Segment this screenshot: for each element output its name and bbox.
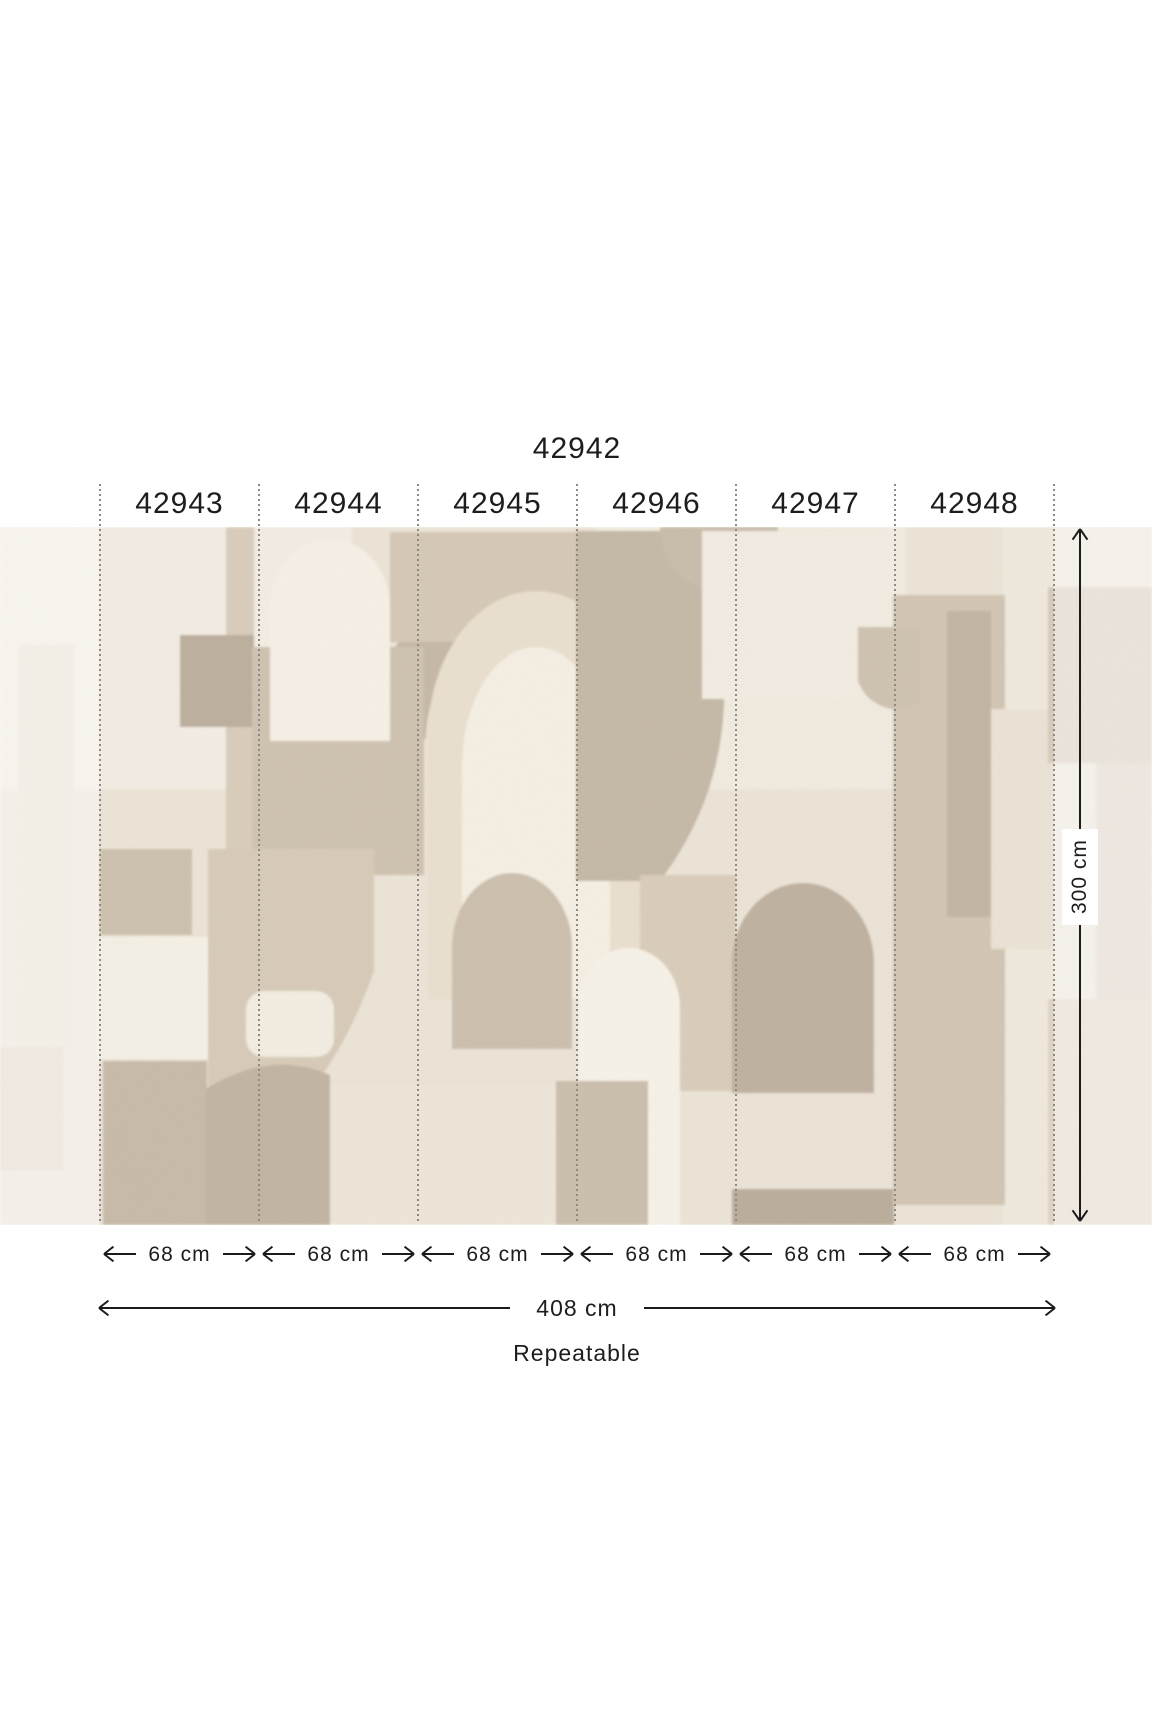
width-arrow-left-icon <box>741 1253 772 1255</box>
mural-collection-code: 42942 <box>100 434 1054 466</box>
width-arrow-right-icon <box>1018 1253 1049 1255</box>
width-arrow-left-icon <box>423 1253 454 1255</box>
panel-width-dimension: 68 cm <box>736 1240 895 1268</box>
panel-width-label: 68 cm <box>625 1244 687 1265</box>
panel-divider-dotted-line <box>1053 484 1055 1224</box>
repeatable-label: Repeatable <box>100 1340 1054 1366</box>
panel-label-42948: 42948 <box>895 489 1054 521</box>
panel-divider-dotted-line <box>99 484 101 1224</box>
total-width-arrow-left-icon <box>100 1307 510 1309</box>
panel-label-42943: 42943 <box>100 489 259 521</box>
panel-width-label: 68 cm <box>307 1244 369 1265</box>
width-arrow-right-icon <box>859 1253 890 1255</box>
width-arrow-left-icon <box>105 1253 136 1255</box>
panel-width-dimension: 68 cm <box>895 1240 1054 1268</box>
panel-width-label: 68 cm <box>784 1244 846 1265</box>
total-width-dimension: 408 cm <box>100 1294 1054 1322</box>
total-width-label: 408 cm <box>536 1297 617 1320</box>
panel-divider-dotted-line <box>735 484 737 1224</box>
panel-width-dimension: 68 cm <box>577 1240 736 1268</box>
panel-divider-dotted-line <box>576 484 578 1224</box>
width-arrow-right-icon <box>382 1253 413 1255</box>
width-arrow-left-icon <box>582 1253 613 1255</box>
width-arrow-right-icon <box>223 1253 254 1255</box>
wallpaper-dimension-diagram: 42942 429434294442945429464294742948 <box>0 0 1152 1728</box>
width-arrow-right-icon <box>541 1253 572 1255</box>
panel-divider-dotted-line <box>417 484 419 1224</box>
width-arrow-left-icon <box>264 1253 295 1255</box>
panel-divider-dotted-line <box>258 484 260 1224</box>
panel-label-42944: 42944 <box>259 489 418 521</box>
panel-width-dimension: 68 cm <box>100 1240 259 1268</box>
panel-width-dimension: 68 cm <box>418 1240 577 1268</box>
panel-width-dimension: 68 cm <box>259 1240 418 1268</box>
panel-label-42946: 42946 <box>577 489 736 521</box>
panel-width-label: 68 cm <box>943 1244 1005 1265</box>
panel-width-label: 68 cm <box>466 1244 528 1265</box>
total-width-arrow-right-icon <box>644 1307 1054 1309</box>
panel-label-42945: 42945 <box>418 489 577 521</box>
panel-width-label: 68 cm <box>148 1244 210 1265</box>
width-arrow-right-icon <box>700 1253 731 1255</box>
panel-label-42947: 42947 <box>736 489 895 521</box>
height-label: 300 cm <box>1062 829 1098 925</box>
width-arrow-left-icon <box>900 1253 931 1255</box>
panel-divider-dotted-line <box>894 484 896 1224</box>
